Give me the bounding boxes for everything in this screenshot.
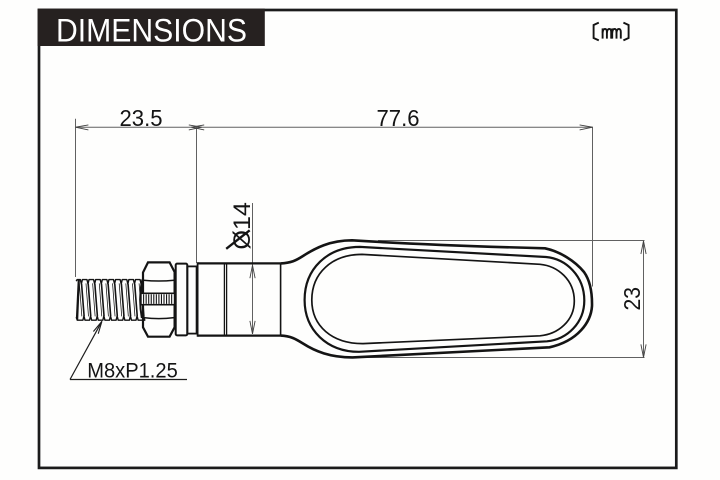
svg-text:DIMENSIONS: DIMENSIONS bbox=[56, 12, 247, 48]
svg-text:77.6: 77.6 bbox=[377, 105, 420, 131]
svg-text:23: 23 bbox=[619, 287, 645, 311]
svg-text:23.5: 23.5 bbox=[120, 105, 163, 131]
svg-text:M8xP1.25: M8xP1.25 bbox=[87, 357, 178, 382]
